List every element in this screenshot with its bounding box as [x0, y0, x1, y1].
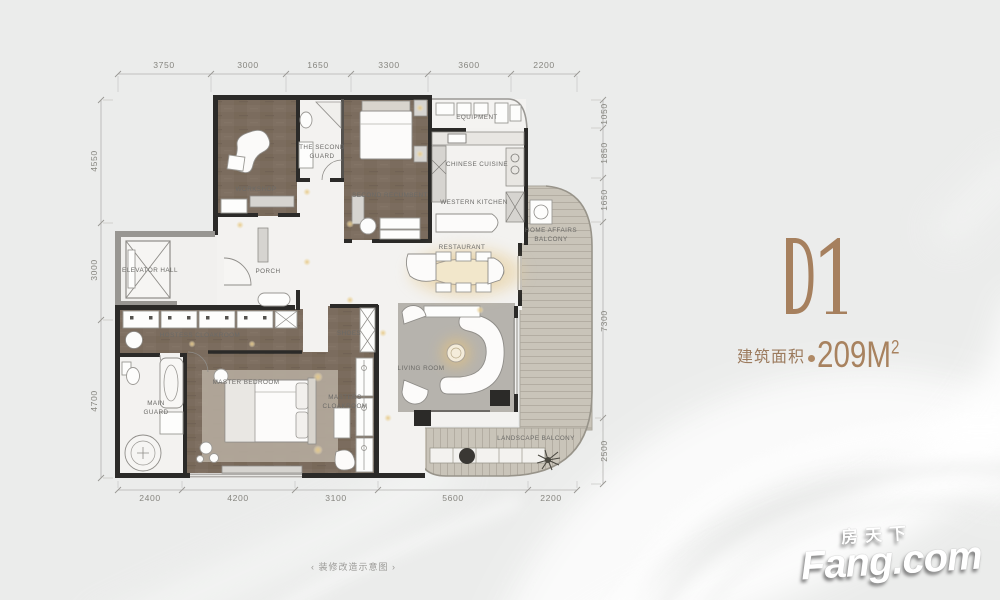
svg-text:3300: 3300 [378, 60, 400, 70]
svg-text:HOSTESS CLOAKROOM: HOSTESS CLOAKROOM [160, 332, 240, 339]
svg-text:3750: 3750 [153, 60, 175, 70]
svg-text:4700: 4700 [89, 390, 99, 412]
svg-text:2500: 2500 [599, 440, 609, 462]
svg-text:HOME AFFAIRS: HOME AFFAIRS [525, 227, 577, 234]
svg-text:2400: 2400 [139, 493, 161, 503]
svg-text:LANDSCAPE BALCONY: LANDSCAPE BALCONY [497, 435, 575, 442]
svg-text:EQUIPMENT: EQUIPMENT [456, 114, 497, 121]
svg-text:PORCH: PORCH [256, 268, 281, 275]
svg-text:WORKSHOP: WORKSHOP [235, 186, 276, 193]
svg-text:3100: 3100 [325, 493, 347, 503]
svg-text:THE SECOND: THE SECOND [299, 144, 345, 151]
svg-text:2200: 2200 [540, 493, 562, 503]
svg-text:SECOND RECUMBENT: SECOND RECUMBENT [352, 192, 428, 199]
svg-text:GUARD: GUARD [144, 409, 169, 416]
svg-text:RESTAURANT: RESTAURANT [439, 244, 486, 251]
svg-text:3000: 3000 [89, 259, 99, 281]
svg-text:CHINESE CUISINE: CHINESE CUISINE [446, 161, 508, 168]
svg-text:3600: 3600 [458, 60, 480, 70]
svg-text:3000: 3000 [237, 60, 259, 70]
svg-text:MASTER BEDROOM: MASTER BEDROOM [213, 379, 280, 386]
svg-text:BALCONY: BALCONY [534, 236, 568, 243]
svg-text:5600: 5600 [442, 493, 464, 503]
svg-text:WESTERN KITCHEN: WESTERN KITCHEN [440, 199, 508, 206]
svg-text:1050: 1050 [599, 103, 609, 125]
svg-text:1650: 1650 [599, 189, 609, 211]
svg-text:4550: 4550 [89, 150, 99, 172]
svg-text:7300: 7300 [599, 310, 609, 332]
svg-text:MASTERS: MASTERS [328, 394, 362, 401]
svg-text:LIVING ROOM: LIVING ROOM [398, 365, 445, 372]
svg-text:ELEVATOR HALL: ELEVATOR HALL [122, 267, 178, 274]
svg-text:1850: 1850 [599, 142, 609, 164]
svg-text:SHOES: SHOES [337, 330, 361, 337]
svg-text:GUARD: GUARD [310, 153, 335, 160]
svg-text:2200: 2200 [533, 60, 555, 70]
svg-text:4200: 4200 [227, 493, 249, 503]
svg-text:1650: 1650 [307, 60, 329, 70]
svg-text:CLOAKROOM: CLOAKROOM [323, 403, 368, 410]
svg-text:MAIN: MAIN [147, 400, 165, 407]
